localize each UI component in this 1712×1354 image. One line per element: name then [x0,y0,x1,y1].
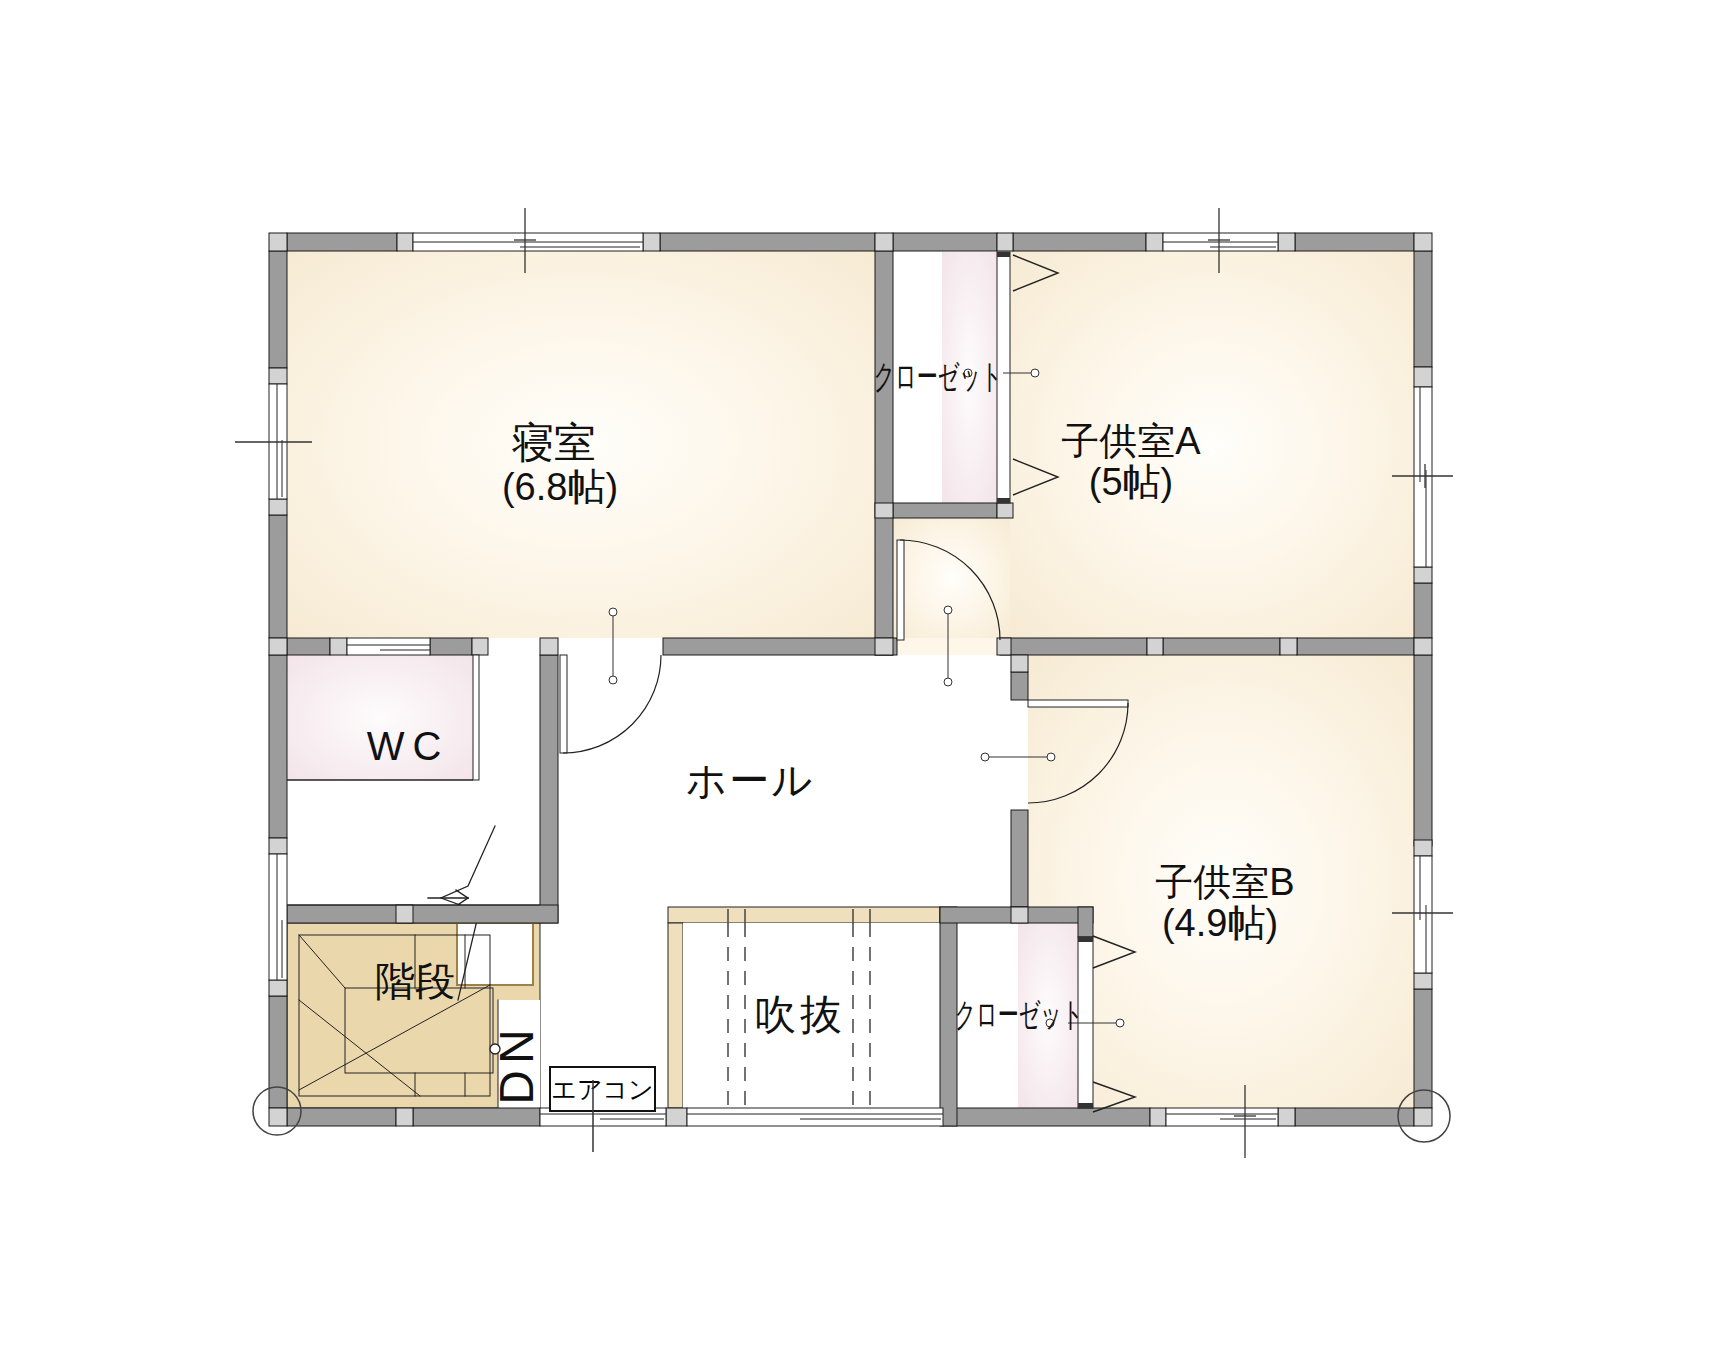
child-room-a-size: (5帖) [1089,463,1173,501]
wall-bedroom-closet [875,251,893,655]
bottom-window-void [687,1108,943,1126]
bedroom-size: (6.8帖) [502,468,618,506]
floor-plan-canvas: 寝室 (6.8帖) 子供室A (5帖) 子供室B (4.9帖) ホール WC 階… [0,0,1712,1354]
child-a-door-leaf [897,540,904,640]
void-handrail-left [668,923,683,1108]
bedroom-doorway [557,638,663,655]
stairs-label: 階段 [375,961,455,1001]
wc-label: WC [367,726,450,766]
landing-floor [287,780,540,905]
hall-label: ホール [686,760,814,800]
closet-bottom-label: クローゼット [955,997,1084,1031]
child-a-east-window [1414,387,1432,567]
wc-niche-opening [488,638,540,655]
child-room-b-size: (4.9帖) [1162,904,1278,942]
bedroom-label: 寝室 [512,422,596,464]
child-b-east-window [1414,856,1432,973]
air-conditioner-box: エアコン [549,1066,656,1112]
wc-niche-floor [479,655,540,780]
air-conditioner-label: エアコン [551,1073,653,1106]
child-b-doorway [1011,700,1028,810]
child-room-a-label: 子供室A [1061,422,1200,460]
child-room-b-label: 子供室B [1155,863,1294,901]
wc-sliding-door [347,638,430,655]
stairs-west-window [269,854,287,980]
child-room-a-entry-floor [893,518,1010,638]
void-label: 吹抜 [754,994,846,1036]
child-b-door-leaf [1028,700,1128,707]
floor-plan-drawing [0,0,1712,1354]
down-label: DN [493,1023,541,1104]
void-handrail-top [668,907,940,923]
child-b-bottom-window [1166,1108,1278,1126]
closet-top-label: クローゼット [874,359,1003,393]
bedroom-door-leaf [560,655,567,753]
